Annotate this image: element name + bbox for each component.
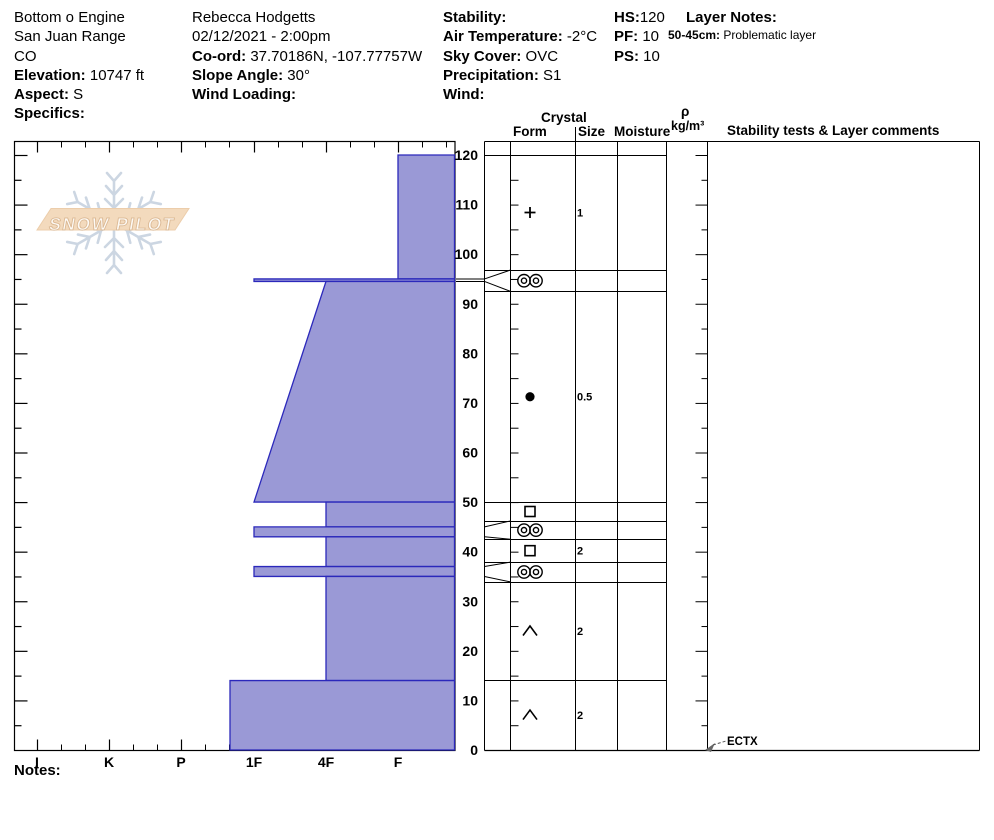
grain-size-value: 0.5 — [577, 392, 592, 404]
svg-text:40: 40 — [462, 544, 478, 560]
stability-test-result: ECTX — [727, 736, 758, 748]
svg-text:F: F — [394, 754, 403, 770]
svg-text:4F: 4F — [318, 754, 335, 770]
svg-text:0: 0 — [470, 742, 478, 758]
svg-text:70: 70 — [462, 395, 478, 411]
grain-symbol-double-circle — [518, 566, 542, 578]
svg-text:K: K — [104, 754, 114, 770]
snow-layer-bar — [254, 281, 455, 502]
logo-text: SNOW PILOT — [48, 214, 177, 234]
profile-table-grid — [485, 127, 980, 751]
grain-symbol-double-circle — [518, 524, 542, 536]
svg-text:1: 1 — [577, 208, 583, 220]
grain-symbol-double-circle — [518, 274, 542, 286]
grain-symbol-dot — [525, 392, 534, 401]
svg-text:2: 2 — [577, 546, 583, 558]
grain-symbol-caret — [523, 626, 537, 636]
svg-text:2: 2 — [577, 710, 583, 722]
grain-symbol-square — [525, 546, 535, 556]
grain-size-value: 1 — [577, 208, 583, 220]
hardness-axis-labels: IKP1F4FF — [35, 754, 403, 770]
form-column-ticks — [511, 180, 519, 725]
depth-axis-labels: 0102030405060708090100110120 — [455, 147, 479, 758]
grain-size-value: 2 — [577, 626, 583, 638]
snow-profile-chart: SNOW PILOT10.522201020304050607080901001… — [0, 0, 994, 840]
svg-text:120: 120 — [455, 147, 479, 163]
grain-symbol-square — [525, 507, 535, 517]
svg-text:0.5: 0.5 — [577, 392, 592, 404]
svg-text:50: 50 — [462, 494, 478, 510]
svg-text:P: P — [176, 754, 185, 770]
svg-text:20: 20 — [462, 643, 478, 659]
hardness-bars — [230, 155, 455, 750]
snow-layer-bar — [398, 155, 455, 279]
svg-text:30: 30 — [462, 593, 478, 609]
grain-symbol-plus — [525, 207, 536, 218]
snow-layer-bar — [254, 527, 455, 537]
snowpilot-watermark: SNOW PILOT — [37, 173, 189, 273]
grain-size-value: 2 — [577, 710, 583, 722]
snow-layer-bar — [254, 567, 455, 577]
svg-text:90: 90 — [462, 296, 478, 312]
grain-symbol-caret — [523, 710, 537, 720]
grain-symbols — [518, 207, 542, 720]
svg-text:80: 80 — [462, 345, 478, 361]
svg-text:100: 100 — [455, 246, 479, 262]
svg-text:60: 60 — [462, 445, 478, 461]
grain-size-value: 2 — [577, 546, 583, 558]
snowpilot-report: Bottom o Engine San Juan Range CO Elevat… — [0, 0, 994, 840]
snow-layer-bar — [326, 576, 455, 680]
svg-text:110: 110 — [455, 197, 478, 213]
density-axis-ticks — [696, 156, 708, 726]
svg-text:10: 10 — [462, 692, 478, 708]
thin-layer-flags — [456, 270, 511, 582]
notes-label: Notes: — [14, 762, 61, 779]
snow-layer-bar — [230, 681, 455, 750]
snow-layer-bar — [326, 537, 455, 567]
snow-layer-bar — [326, 502, 455, 527]
svg-text:2: 2 — [577, 626, 583, 638]
svg-text:1F: 1F — [246, 754, 263, 770]
